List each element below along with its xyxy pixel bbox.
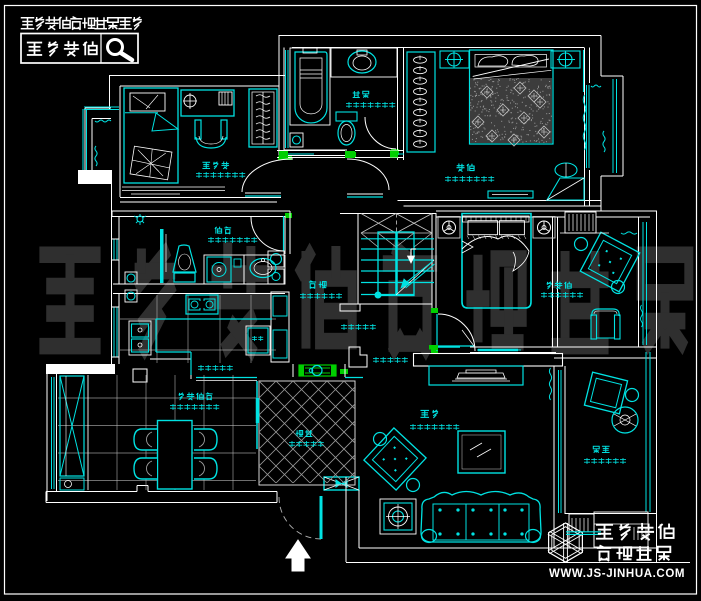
svg-text:WWW.JS-JINHUA.COM: WWW.JS-JINHUA.COM — [549, 568, 685, 580]
